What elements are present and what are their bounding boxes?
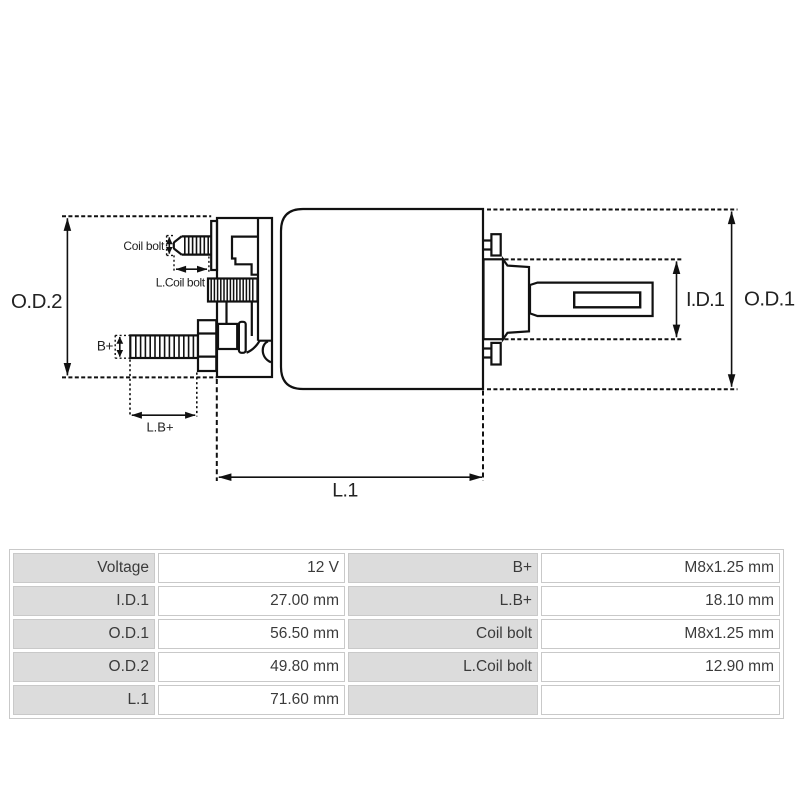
svg-text:L.1: L.1 bbox=[332, 480, 358, 502]
svg-text:L.Coil bolt: L.Coil bolt bbox=[156, 276, 206, 290]
svg-text:B+: B+ bbox=[97, 338, 114, 353]
svg-text:I.D.1: I.D.1 bbox=[686, 289, 725, 311]
svg-text:L.B+: L.B+ bbox=[146, 420, 173, 435]
svg-text:O.D.2: O.D.2 bbox=[11, 290, 62, 313]
svg-text:O.D.1: O.D.1 bbox=[744, 288, 795, 311]
svg-text:Coil bolt: Coil bolt bbox=[123, 239, 165, 253]
